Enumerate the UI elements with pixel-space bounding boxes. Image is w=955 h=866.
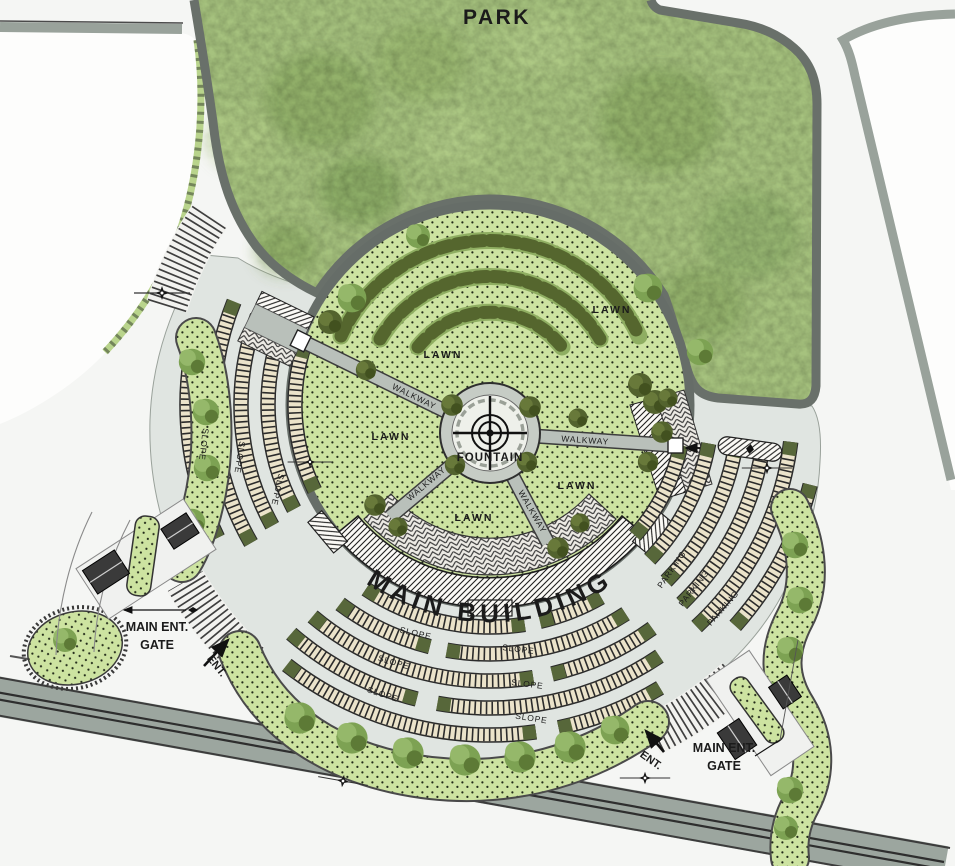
lawn-label: LAWN [558, 480, 597, 492]
lawn-label: LAWN [372, 431, 411, 443]
park-label: PARK [463, 6, 531, 29]
east-gate-label-line1: MAIN ENT. [693, 741, 756, 755]
west-gate-label-line2: GATE [140, 638, 174, 652]
east-gate-label-line2: GATE [707, 759, 741, 773]
lawn-label: LAWN [424, 349, 463, 361]
east-door [668, 438, 683, 453]
west-gate-label-line1: MAIN ENT. [126, 620, 189, 634]
site-plan-drawing: MAIN BUILDING [0, 0, 955, 866]
fountain-label: FOUNTAIN [457, 452, 524, 464]
lawn-label: LAWN [593, 304, 632, 316]
lawn-label: LAWN [455, 512, 494, 524]
site-plan-page: MAIN BUILDING [0, 0, 955, 866]
curb-band-top-left [0, 27, 182, 29]
